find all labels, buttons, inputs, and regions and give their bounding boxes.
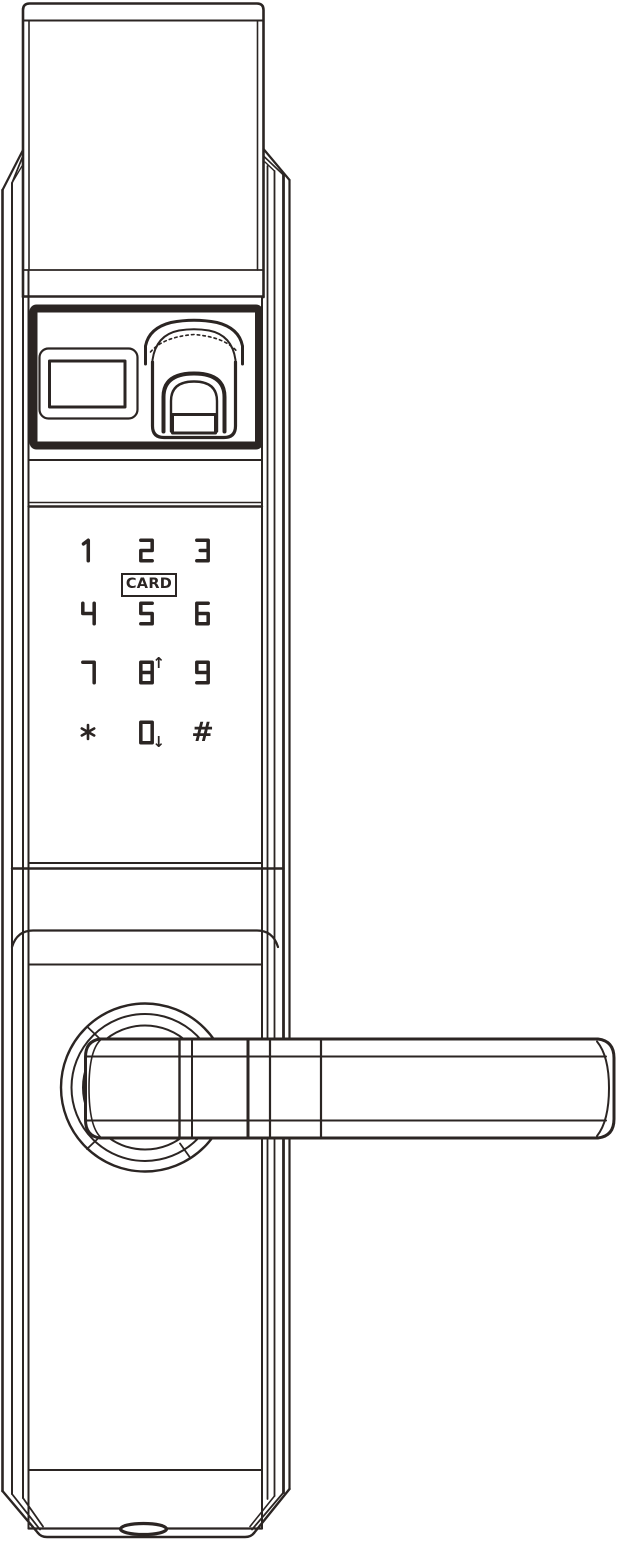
display-window (40, 349, 138, 419)
door-lock-illustration: CARD ↑↓# (0, 0, 617, 1541)
card-label: CARD (126, 577, 172, 592)
card-label-badge: CARD (121, 573, 177, 597)
fingerprint-scanner-icon (146, 320, 243, 437)
face-section-lines (12, 460, 284, 1470)
sensor-panel (34, 309, 260, 446)
lock-line-art (0, 0, 617, 1541)
door-handle (61, 1004, 614, 1172)
handle-lever (86, 1039, 615, 1138)
top-cover-panel (23, 4, 264, 298)
bottom-slot (121, 1524, 167, 1535)
